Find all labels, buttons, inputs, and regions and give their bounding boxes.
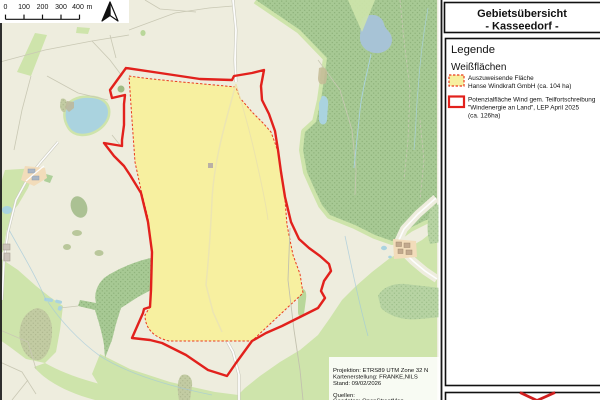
svg-text:100: 100: [18, 4, 30, 11]
svg-text:Stand: 09/02/2026: Stand: 09/02/2026: [333, 381, 382, 387]
svg-text:300: 300: [55, 4, 67, 11]
svg-text:Legende: Legende: [451, 44, 495, 56]
svg-text:"Windenergie an Land", LEP Apr: "Windenergie an Land", LEP April 2025: [468, 105, 579, 112]
svg-text:Gebietsübersicht: Gebietsübersicht: [477, 8, 567, 20]
svg-text:Projektion: ETRS89 UTM Zone 32: Projektion: ETRS89 UTM Zone 32 N: [333, 368, 428, 374]
svg-text:Kartenerstellung: FRANKE,NILS: Kartenerstellung: FRANKE,NILS: [333, 375, 418, 381]
svg-text:(ca. 126ha): (ca. 126ha): [468, 113, 500, 120]
svg-text:Weißflächen: Weißflächen: [451, 62, 506, 73]
svg-text:m: m: [87, 4, 93, 11]
svg-text:Auszuweisende Fläche: Auszuweisende Fläche: [468, 75, 534, 82]
svg-text:200: 200: [37, 4, 49, 11]
svg-text:Hanse Windkraft GmbH (ca. 104: Hanse Windkraft GmbH (ca. 104 ha): [468, 83, 571, 90]
svg-text:0: 0: [4, 4, 8, 11]
svg-text:Potenzialfläche Wind gem. Teil: Potenzialfläche Wind gem. Teilfortschrei…: [468, 97, 596, 104]
svg-text:- Kasseedorf -: - Kasseedorf -: [485, 21, 559, 33]
svg-text:400: 400: [72, 4, 84, 11]
